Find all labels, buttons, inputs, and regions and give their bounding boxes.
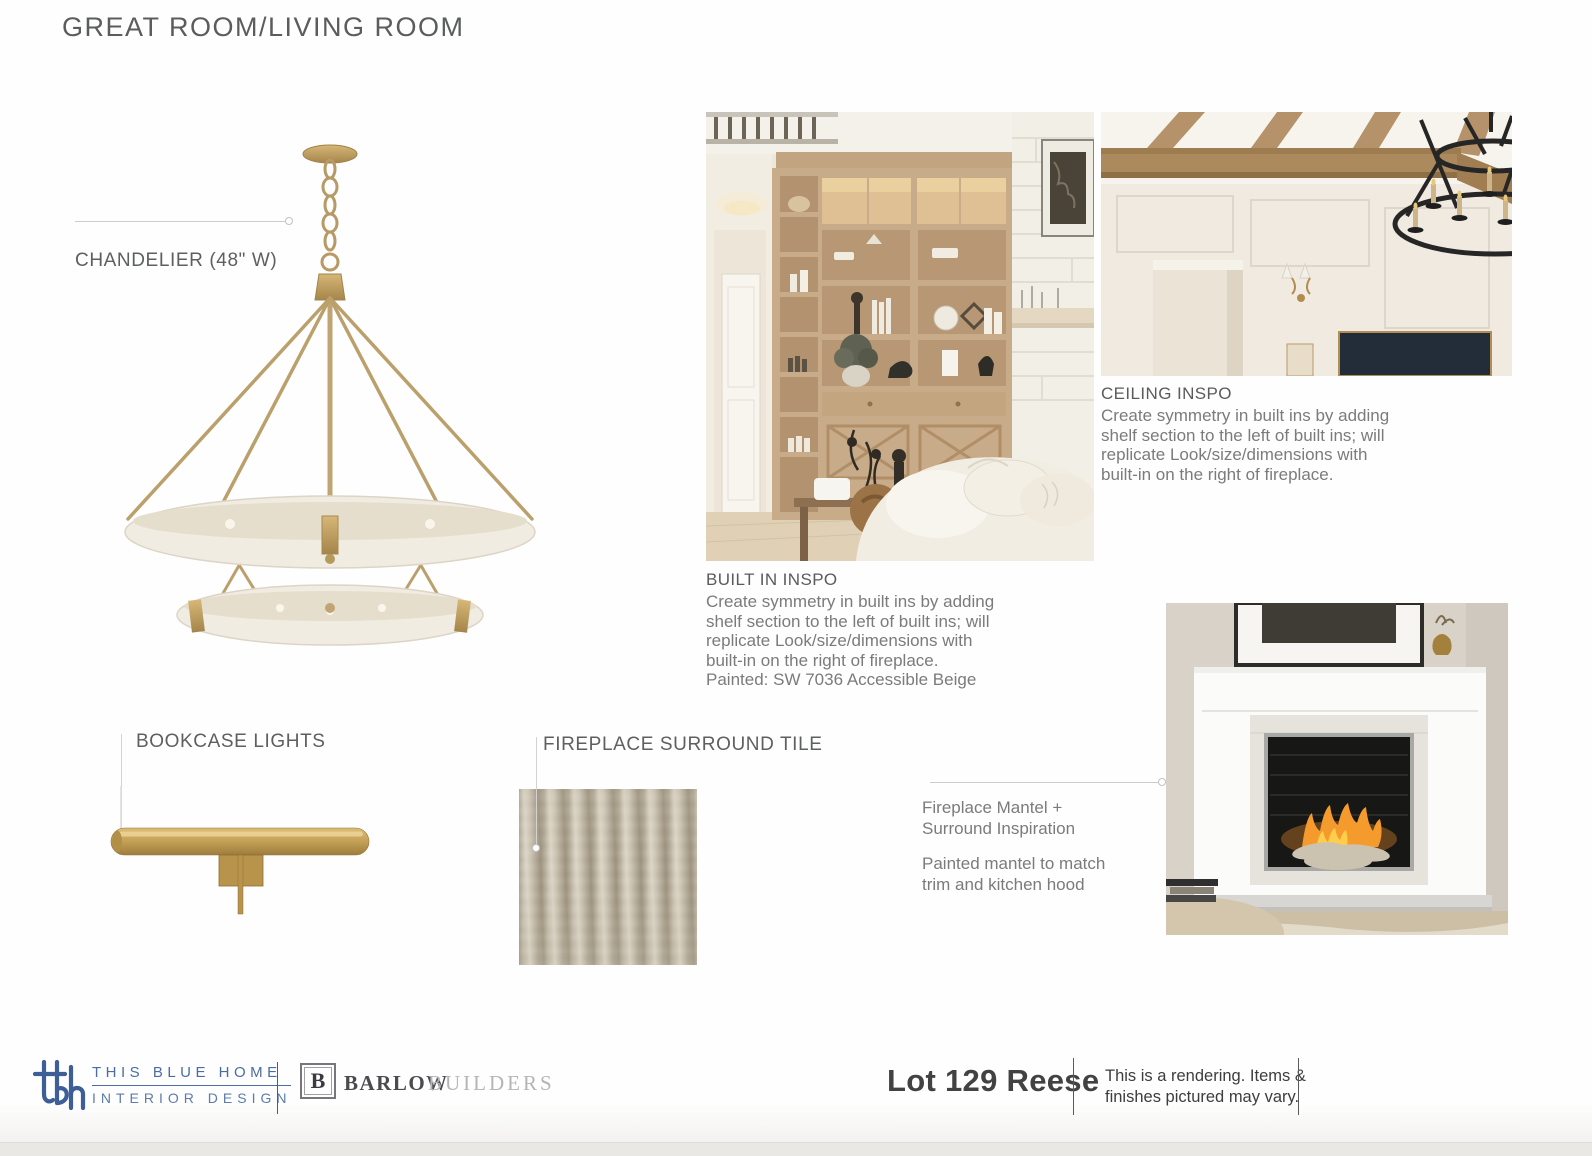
built-in-caption: BUILT IN INSPO Create symmetry in built …: [706, 570, 1106, 690]
brand-subtitle: INTERIOR DESIGN: [92, 1090, 291, 1106]
picture-light-illustration: [95, 786, 385, 918]
bottom-strip: [0, 1142, 1592, 1156]
barlow-initial: B: [304, 1067, 332, 1095]
bookcase-lights-label: BOOKCASE LIGHTS: [136, 731, 326, 753]
tbh-monogram-logo: [32, 1058, 86, 1114]
bookcase-light-product-image: [95, 786, 385, 918]
fireplace-inspo-photo: [1166, 603, 1508, 935]
ceiling-text: Create symmetry in built ins by adding s…: [1101, 406, 1521, 484]
mantel-leader-line: [930, 782, 1160, 783]
mantel-annotation: Fireplace Mantel + Surround Inspiration …: [922, 797, 1162, 895]
mantel-leader-dot: [1158, 778, 1166, 786]
fireplace-tile-swatch: [519, 789, 697, 965]
built-in-heading: BUILT IN INSPO: [706, 570, 1106, 590]
footer-gradient: [0, 1100, 1592, 1142]
chandelier-leader-line: [75, 221, 285, 222]
ceiling-inspo-photo: [1101, 112, 1512, 376]
chandelier-label: CHANDELIER (48" W): [75, 250, 277, 272]
built-in-inspo-photo: [706, 112, 1094, 561]
brand-text-block: THIS BLUE HOME INTERIOR DESIGN: [92, 1064, 291, 1106]
ceiling-heading: CEILING INSPO: [1101, 384, 1521, 404]
footer-divider-2: [1073, 1058, 1074, 1115]
builder-suffix: BUILDERS: [428, 1071, 555, 1096]
footer-divider-3: [1298, 1058, 1299, 1115]
design-board-page: GREAT ROOM/LIVING ROOM: [0, 0, 1592, 1156]
built-in-text: Create symmetry in built ins by adding s…: [706, 592, 1106, 690]
chandelier-illustration: [90, 138, 570, 672]
brand-name: THIS BLUE HOME: [92, 1064, 291, 1086]
fireplace-tile-label: FIREPLACE SURROUND TILE: [543, 734, 823, 756]
barlow-logo-square: B: [300, 1063, 336, 1099]
fireplace-tile-leader-dot: [532, 844, 540, 852]
fireplace-tile-leader-line: [536, 737, 537, 845]
page-title: GREAT ROOM/LIVING ROOM: [62, 12, 465, 43]
ceiling-caption: CEILING INSPO Create symmetry in built i…: [1101, 384, 1521, 484]
chandelier-leader-dot: [285, 217, 293, 225]
rendering-disclaimer: This is a rendering. Items & finishes pi…: [1105, 1066, 1306, 1108]
chandelier-product-image: [90, 138, 570, 672]
lot-label: Lot 129 Reese: [887, 1063, 1099, 1099]
footer-divider-1: [277, 1062, 278, 1114]
